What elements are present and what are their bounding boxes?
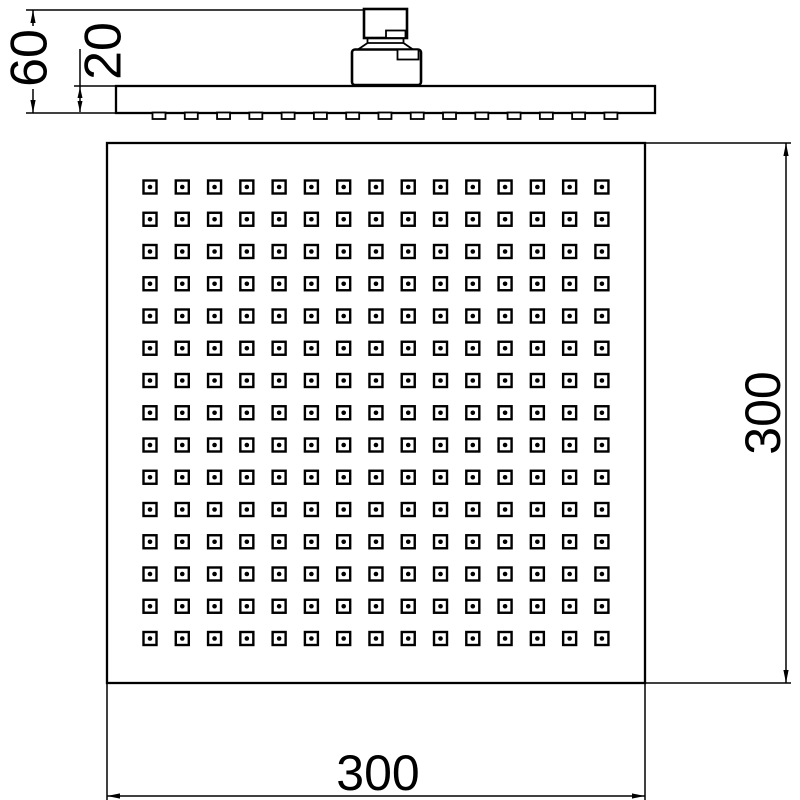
nozzle-dot bbox=[535, 475, 540, 480]
side-nozzle-tab bbox=[475, 113, 488, 120]
side-nozzle-tab bbox=[540, 113, 553, 120]
nozzle-dot bbox=[438, 636, 443, 641]
nozzle-dot bbox=[438, 314, 443, 319]
nozzle-dot bbox=[374, 346, 379, 351]
nozzle-dot bbox=[180, 281, 185, 286]
nozzle-dot bbox=[600, 604, 605, 609]
nozzle-dot bbox=[309, 507, 314, 512]
nozzle-dot bbox=[471, 636, 476, 641]
side-nozzle-tab bbox=[508, 113, 521, 120]
nozzle-dot bbox=[600, 539, 605, 544]
nozzle-dot bbox=[148, 475, 153, 480]
nozzle-dot bbox=[309, 378, 314, 383]
nozzle-dot bbox=[212, 475, 217, 480]
dim300-right-label: 300 bbox=[735, 371, 791, 454]
nozzle-dot bbox=[503, 475, 508, 480]
nozzle-dot bbox=[341, 507, 346, 512]
nozzle-dot bbox=[277, 443, 282, 448]
nozzle-dot bbox=[471, 378, 476, 383]
nozzle-dot bbox=[471, 185, 476, 190]
nozzle-dot bbox=[406, 217, 411, 222]
nozzle-dot bbox=[438, 217, 443, 222]
nozzle-dot bbox=[245, 185, 250, 190]
nozzle-dot bbox=[245, 346, 250, 351]
nozzle-dot bbox=[406, 636, 411, 641]
nozzle-dot bbox=[438, 539, 443, 544]
nozzle-dot bbox=[212, 539, 217, 544]
nozzle-dot bbox=[438, 378, 443, 383]
nozzle-dot bbox=[600, 507, 605, 512]
nozzle-dot bbox=[212, 572, 217, 577]
nozzle-dot bbox=[600, 185, 605, 190]
nozzle-dot bbox=[600, 475, 605, 480]
nozzle-dot bbox=[503, 249, 508, 254]
nozzle-dot bbox=[567, 604, 572, 609]
nozzle-dot bbox=[245, 475, 250, 480]
dim60-arrow-down bbox=[30, 100, 35, 113]
nozzle-dot bbox=[341, 217, 346, 222]
nozzle-dot bbox=[567, 539, 572, 544]
nozzle-dot bbox=[503, 507, 508, 512]
nozzle-dot bbox=[212, 378, 217, 383]
nozzle-dot bbox=[374, 443, 379, 448]
nozzle-dot bbox=[277, 249, 282, 254]
nozzle-dot bbox=[374, 507, 379, 512]
nozzle-dot bbox=[148, 507, 153, 512]
nozzle-dot bbox=[503, 185, 508, 190]
nozzle-dot bbox=[471, 539, 476, 544]
nozzle-dot bbox=[503, 346, 508, 351]
nozzle-dot bbox=[148, 249, 153, 254]
nozzle-dot bbox=[535, 314, 540, 319]
side-plate-outline bbox=[116, 86, 655, 113]
dimension-300-right: 300 bbox=[645, 143, 791, 683]
nozzle-dot bbox=[148, 314, 153, 319]
nozzle-dot bbox=[471, 314, 476, 319]
nozzle-dot bbox=[406, 410, 411, 415]
nozzle-dot bbox=[341, 604, 346, 609]
nozzle-dot bbox=[374, 249, 379, 254]
nozzle-dot bbox=[567, 507, 572, 512]
side-nozzle-tab bbox=[249, 113, 262, 120]
nozzle-dot bbox=[503, 539, 508, 544]
nozzle-dot bbox=[567, 443, 572, 448]
nozzle-dot bbox=[374, 410, 379, 415]
nozzle-dot bbox=[438, 249, 443, 254]
nozzle-dot bbox=[277, 378, 282, 383]
nozzle-dot bbox=[471, 507, 476, 512]
side-nozzle-tab bbox=[282, 113, 295, 120]
nozzle-dot bbox=[148, 443, 153, 448]
nozzle-dot bbox=[535, 539, 540, 544]
dim60-arrow-up bbox=[30, 10, 35, 23]
nozzle-dot bbox=[341, 346, 346, 351]
nozzle-dot bbox=[471, 249, 476, 254]
nozzle-dot bbox=[374, 281, 379, 286]
nozzle-dot bbox=[471, 604, 476, 609]
nozzle-dot bbox=[535, 604, 540, 609]
nozzle-dot bbox=[245, 443, 250, 448]
nozzle-dot bbox=[406, 281, 411, 286]
nozzle-dot bbox=[600, 314, 605, 319]
nozzle-dot bbox=[309, 281, 314, 286]
nozzle-dot bbox=[535, 217, 540, 222]
nozzle-dot bbox=[535, 185, 540, 190]
nozzle-dot bbox=[438, 572, 443, 577]
nozzle-dot bbox=[148, 410, 153, 415]
nozzle-dot bbox=[535, 636, 540, 641]
nozzle-dot bbox=[600, 249, 605, 254]
nozzle-dot bbox=[406, 572, 411, 577]
nozzle-dot bbox=[438, 443, 443, 448]
nozzle-dot bbox=[277, 217, 282, 222]
technical-drawing-canvas: 60 20 300 300 bbox=[0, 0, 800, 800]
nozzle-dot bbox=[277, 636, 282, 641]
nozzle-dot bbox=[374, 475, 379, 480]
dim300r-arrow-down bbox=[783, 670, 788, 683]
nozzle-dot bbox=[309, 185, 314, 190]
nozzle-dot bbox=[245, 378, 250, 383]
nozzle-dot bbox=[503, 636, 508, 641]
nozzle-dot bbox=[471, 217, 476, 222]
nozzle-dot bbox=[341, 475, 346, 480]
nozzle-dot bbox=[212, 604, 217, 609]
nozzle-dot bbox=[277, 539, 282, 544]
side-nozzle-tab bbox=[346, 113, 359, 120]
nozzle-dot bbox=[438, 410, 443, 415]
nozzle-dot bbox=[567, 378, 572, 383]
nozzle-dot bbox=[212, 507, 217, 512]
nozzle-dot bbox=[148, 572, 153, 577]
nozzle-dot bbox=[438, 507, 443, 512]
nozzle-dot bbox=[535, 507, 540, 512]
nozzle-dot bbox=[148, 281, 153, 286]
nozzle-dot bbox=[406, 185, 411, 190]
nozzle-dot bbox=[245, 604, 250, 609]
nozzle-dot bbox=[277, 185, 282, 190]
nozzle-dot bbox=[180, 604, 185, 609]
nozzle-dot bbox=[374, 378, 379, 383]
nozzle-dot bbox=[212, 346, 217, 351]
nozzle-dot bbox=[406, 475, 411, 480]
nozzle-dot bbox=[212, 410, 217, 415]
nozzle-dot bbox=[374, 314, 379, 319]
side-nozzle-tab bbox=[153, 113, 166, 120]
nozzle-grid bbox=[144, 181, 609, 646]
nozzle-dot bbox=[438, 346, 443, 351]
nozzle-dot bbox=[567, 281, 572, 286]
dim60-label: 60 bbox=[1, 29, 59, 87]
side-nozzle-tab bbox=[378, 113, 391, 120]
nozzle-dot bbox=[180, 217, 185, 222]
nozzle-dot bbox=[406, 443, 411, 448]
nozzle-dot bbox=[567, 572, 572, 577]
nozzle-dot bbox=[567, 217, 572, 222]
nozzle-dot bbox=[600, 217, 605, 222]
nozzle-dot bbox=[277, 507, 282, 512]
nozzle-dot bbox=[245, 281, 250, 286]
nozzle-dot bbox=[180, 185, 185, 190]
nozzle-dot bbox=[212, 443, 217, 448]
connector-fitting-notch bbox=[386, 31, 406, 39]
nozzle-dot bbox=[212, 185, 217, 190]
nozzle-dot bbox=[148, 378, 153, 383]
nozzle-dot bbox=[471, 572, 476, 577]
nozzle-dot bbox=[212, 314, 217, 319]
nozzle-dot bbox=[374, 539, 379, 544]
nozzle-dot bbox=[535, 443, 540, 448]
dim300b-arrow-right bbox=[632, 793, 645, 798]
nozzle-dot bbox=[535, 346, 540, 351]
nozzle-dot bbox=[374, 572, 379, 577]
nozzle-dot bbox=[277, 572, 282, 577]
nozzle-dot bbox=[406, 346, 411, 351]
nozzle-dot bbox=[212, 281, 217, 286]
nozzle-dot bbox=[180, 249, 185, 254]
nozzle-dot bbox=[180, 346, 185, 351]
nozzle-dot bbox=[309, 604, 314, 609]
nozzle-dot bbox=[341, 410, 346, 415]
nozzle-dot bbox=[341, 314, 346, 319]
nozzle-dot bbox=[277, 314, 282, 319]
nozzle-dot bbox=[341, 249, 346, 254]
nozzle-dot bbox=[309, 539, 314, 544]
nozzle-dot bbox=[567, 249, 572, 254]
nozzle-dot bbox=[309, 217, 314, 222]
nozzle-dot bbox=[180, 507, 185, 512]
side-nozzle-tab bbox=[604, 113, 617, 120]
nozzle-dot bbox=[471, 443, 476, 448]
nozzle-dot bbox=[535, 572, 540, 577]
nozzle-dot bbox=[277, 604, 282, 609]
nozzle-dot bbox=[438, 185, 443, 190]
front-view bbox=[107, 143, 645, 683]
nozzle-dot bbox=[406, 378, 411, 383]
nozzle-dot bbox=[503, 281, 508, 286]
nozzle-dot bbox=[567, 475, 572, 480]
nozzle-dot bbox=[309, 475, 314, 480]
side-view bbox=[116, 9, 655, 119]
nozzle-dot bbox=[341, 281, 346, 286]
nozzle-dot bbox=[406, 249, 411, 254]
nozzle-dot bbox=[567, 346, 572, 351]
nozzle-dot bbox=[309, 249, 314, 254]
nozzle-dot bbox=[148, 636, 153, 641]
nozzle-dot bbox=[503, 572, 508, 577]
nozzle-dot bbox=[600, 281, 605, 286]
dimension-300-bottom: 300 bbox=[107, 683, 645, 800]
nozzle-dot bbox=[148, 346, 153, 351]
nozzle-dot bbox=[406, 314, 411, 319]
nozzle-dot bbox=[309, 346, 314, 351]
nozzle-dot bbox=[341, 185, 346, 190]
nozzle-dot bbox=[503, 217, 508, 222]
nozzle-dot bbox=[212, 217, 217, 222]
nozzle-dot bbox=[341, 572, 346, 577]
dim20-arrow-up bbox=[78, 87, 83, 98]
nozzle-dot bbox=[277, 281, 282, 286]
nozzle-dot bbox=[567, 410, 572, 415]
nozzle-dot bbox=[503, 443, 508, 448]
nozzle-dot bbox=[567, 636, 572, 641]
nozzle-dot bbox=[406, 539, 411, 544]
drawing-page: 60 20 300 300 bbox=[0, 0, 800, 800]
nozzle-dot bbox=[309, 636, 314, 641]
nozzle-dot bbox=[180, 378, 185, 383]
nozzle-dot bbox=[374, 217, 379, 222]
nozzle-dot bbox=[503, 314, 508, 319]
nozzle-dot bbox=[374, 604, 379, 609]
dim20-label: 20 bbox=[75, 22, 133, 80]
nozzle-dot bbox=[535, 378, 540, 383]
nozzle-dot bbox=[374, 185, 379, 190]
nozzle-dot bbox=[471, 281, 476, 286]
connector-body-notch bbox=[398, 50, 419, 60]
nozzle-dot bbox=[438, 281, 443, 286]
nozzle-dot bbox=[245, 539, 250, 544]
nozzle-dot bbox=[341, 636, 346, 641]
nozzle-dot bbox=[341, 539, 346, 544]
side-nozzle-tab bbox=[443, 113, 456, 120]
nozzle-dot bbox=[148, 217, 153, 222]
side-nozzle-tab bbox=[572, 113, 585, 120]
nozzle-dot bbox=[212, 636, 217, 641]
nozzle-dot bbox=[471, 410, 476, 415]
nozzle-dot bbox=[309, 443, 314, 448]
nozzle-dot bbox=[600, 378, 605, 383]
side-nozzle-tab bbox=[411, 113, 424, 120]
nozzle-dot bbox=[245, 217, 250, 222]
nozzle-dot bbox=[535, 249, 540, 254]
nozzle-dot bbox=[600, 636, 605, 641]
nozzle-dot bbox=[180, 443, 185, 448]
nozzle-dot bbox=[374, 636, 379, 641]
side-nozzle-tabs bbox=[153, 113, 618, 120]
nozzle-dot bbox=[245, 249, 250, 254]
nozzle-dot bbox=[148, 604, 153, 609]
nozzle-dot bbox=[180, 539, 185, 544]
nozzle-dot bbox=[148, 185, 153, 190]
nozzle-dot bbox=[503, 410, 508, 415]
nozzle-dot bbox=[567, 185, 572, 190]
nozzle-dot bbox=[471, 475, 476, 480]
side-nozzle-tab bbox=[185, 113, 198, 120]
nozzle-dot bbox=[180, 636, 185, 641]
nozzle-dot bbox=[180, 410, 185, 415]
dim300b-arrow-left bbox=[107, 793, 120, 798]
nozzle-dot bbox=[471, 346, 476, 351]
side-nozzle-tab bbox=[314, 113, 327, 120]
nozzle-dot bbox=[212, 249, 217, 254]
nozzle-dot bbox=[535, 410, 540, 415]
nozzle-dot bbox=[503, 378, 508, 383]
nozzle-dot bbox=[180, 572, 185, 577]
nozzle-dot bbox=[309, 572, 314, 577]
nozzle-dot bbox=[277, 475, 282, 480]
nozzle-dot bbox=[245, 572, 250, 577]
nozzle-dot bbox=[148, 539, 153, 544]
nozzle-dot bbox=[600, 410, 605, 415]
nozzle-dot bbox=[567, 314, 572, 319]
nozzle-dot bbox=[245, 507, 250, 512]
nozzle-dot bbox=[245, 636, 250, 641]
nozzle-dot bbox=[600, 572, 605, 577]
nozzle-dot bbox=[438, 475, 443, 480]
nozzle-dot bbox=[600, 443, 605, 448]
dim300r-arrow-up bbox=[783, 143, 788, 156]
nozzle-dot bbox=[245, 314, 250, 319]
nozzle-dot bbox=[277, 346, 282, 351]
nozzle-dot bbox=[438, 604, 443, 609]
nozzle-dot bbox=[309, 314, 314, 319]
nozzle-dot bbox=[277, 410, 282, 415]
nozzle-dot bbox=[245, 410, 250, 415]
nozzle-dot bbox=[535, 281, 540, 286]
side-nozzle-tab bbox=[217, 113, 230, 120]
nozzle-dot bbox=[180, 314, 185, 319]
dim300-bottom-label: 300 bbox=[336, 745, 419, 800]
nozzle-dot bbox=[341, 378, 346, 383]
nozzle-dot bbox=[180, 475, 185, 480]
nozzle-dot bbox=[406, 507, 411, 512]
nozzle-dot bbox=[341, 443, 346, 448]
nozzle-dot bbox=[503, 604, 508, 609]
dim20-arrow-down bbox=[78, 101, 83, 112]
nozzle-dot bbox=[600, 346, 605, 351]
nozzle-dot bbox=[406, 604, 411, 609]
nozzle-dot bbox=[309, 410, 314, 415]
